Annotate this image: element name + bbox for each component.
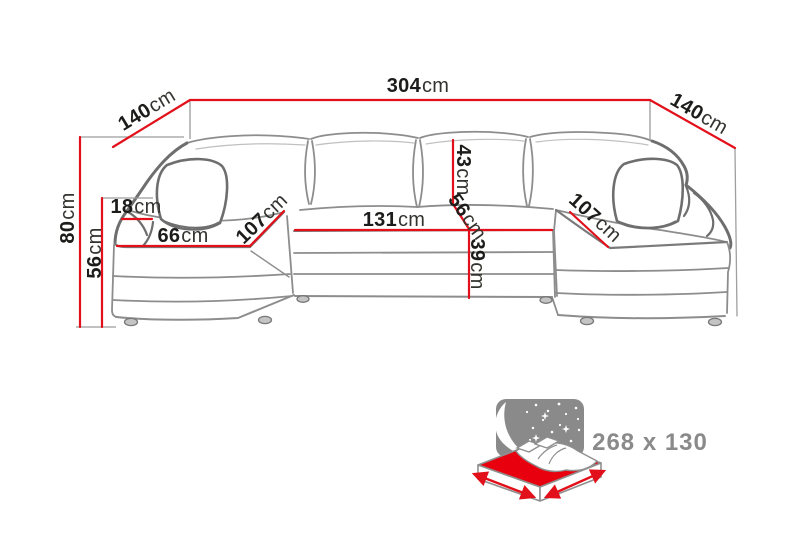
dim-armrest-width-label: 18cm (110, 197, 161, 217)
dim-value: 43 (452, 144, 474, 167)
backrest-top-edge (311, 133, 418, 139)
dim-unit: cm (134, 196, 161, 218)
dim-value: 39 (466, 238, 488, 261)
dim-value: 80 (57, 221, 79, 244)
dim-chaise-seat-width-label: 66cm (157, 226, 208, 246)
dim-overall-height-label: 80cm (58, 192, 78, 243)
sofa-foot (581, 317, 594, 324)
right-base-right-edge (727, 242, 730, 313)
dim-value: 66 (157, 225, 180, 247)
sofa-foot (540, 297, 552, 304)
sofa-foot (259, 316, 272, 323)
dim-unit: cm (398, 209, 425, 231)
sofa-foot (709, 318, 722, 325)
right-seat-front-edge (610, 242, 727, 248)
dim-seat-height-label: 56cm (85, 227, 105, 278)
backrest-top-edge (420, 132, 528, 138)
cushion-seam (523, 139, 533, 206)
right-base-seam (555, 268, 728, 271)
left-base-seam (113, 274, 290, 278)
dim-unit: cm (57, 192, 79, 219)
dim-middle-seat-width-label: 131cm (363, 210, 426, 230)
cushion-seam (305, 141, 315, 204)
seat-back-line (300, 205, 553, 210)
dim-unit: cm (84, 227, 106, 254)
dim-value: 18 (110, 196, 133, 218)
dim-total-width-label: 304cm (387, 76, 450, 96)
dim-backrest-height-label: 43cm (453, 144, 473, 195)
middle-base-bottom (295, 296, 552, 297)
sofa-dimension-diagram: 304cm 140cm 140cm 80cm 56cm 18cm 66cm 10… (0, 0, 800, 533)
dim-base-height-label: 39cm (467, 238, 487, 289)
dim-unit: cm (466, 262, 488, 289)
backrest-top-edge (187, 135, 309, 143)
right-arm-inner-edge (684, 186, 689, 216)
right-corner-pillow (613, 159, 683, 228)
left-corner-seam (251, 251, 289, 277)
sofa-back-right-edge (735, 149, 737, 316)
right-base-seam (556, 292, 727, 295)
dim-value: 304 (387, 75, 421, 97)
left-corner-edge (287, 216, 293, 293)
sofa-foot (125, 318, 138, 325)
sleeping-function-icon (474, 399, 604, 501)
dim-value: 131 (363, 209, 397, 231)
dim-value: 56 (84, 256, 106, 279)
left-corner-pillow (157, 159, 227, 229)
sofa-foot (297, 296, 309, 303)
dim-unit: cm (181, 225, 208, 247)
right-corner-ramp (552, 297, 558, 315)
left-base-seam (113, 296, 292, 302)
middle-base-seam (294, 252, 554, 253)
sleeping-area-label: 268 x 130 (592, 431, 708, 455)
cushion-seam (413, 140, 423, 207)
dim-unit: cm (422, 75, 449, 97)
left-base-left-edge (112, 245, 118, 317)
